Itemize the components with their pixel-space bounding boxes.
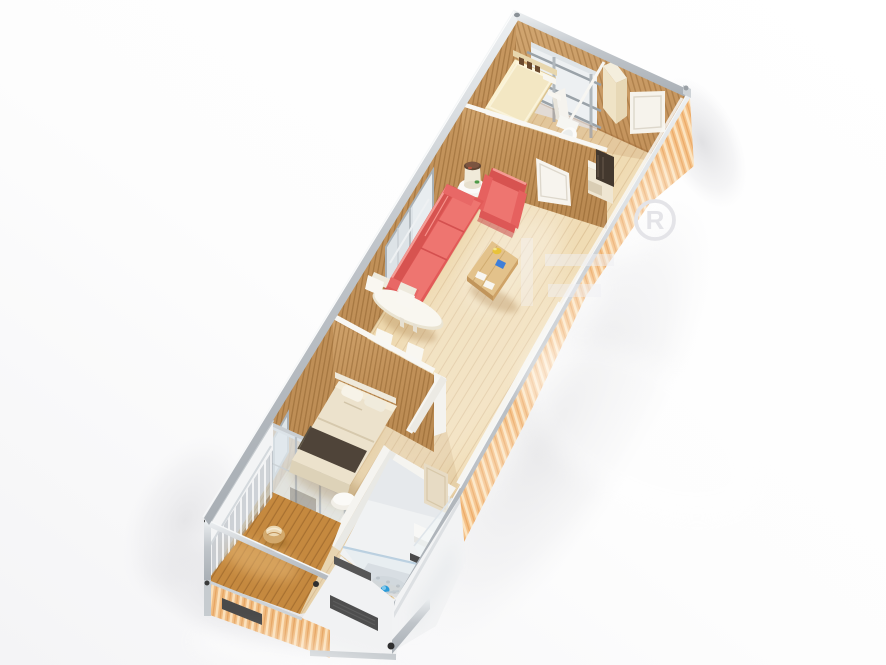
svg-text:R: R [646,205,665,235]
